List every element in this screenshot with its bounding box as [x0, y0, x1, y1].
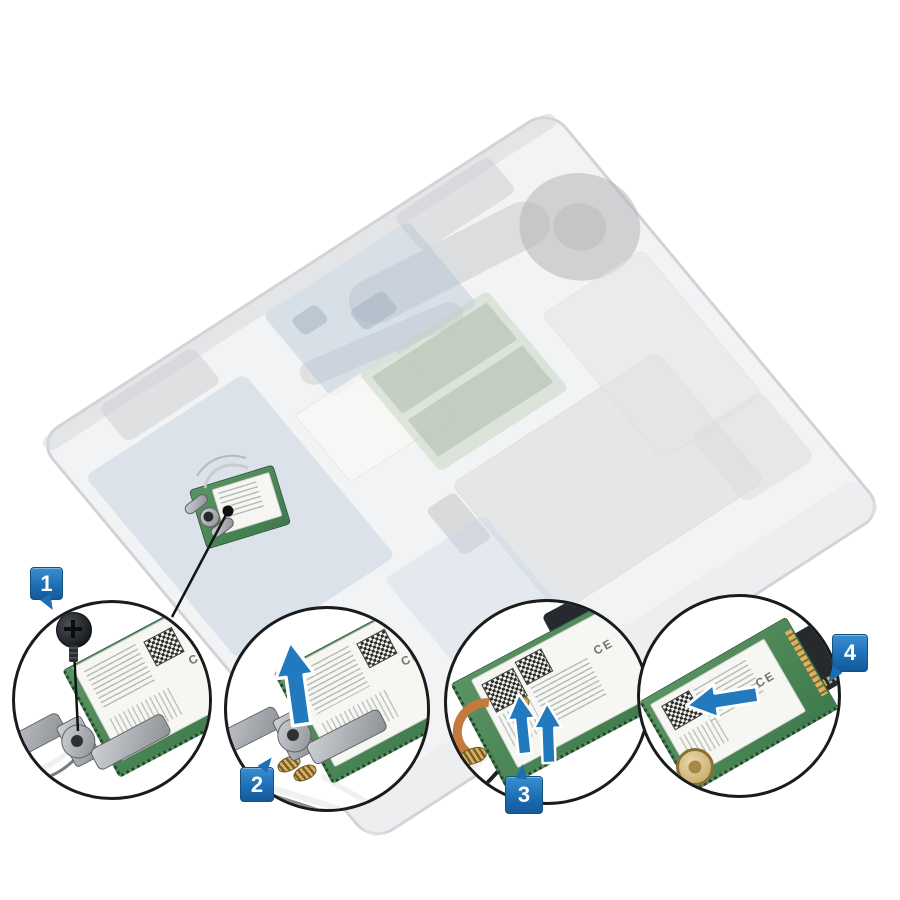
screw-shaft [69, 645, 78, 662]
step4-label: 4 [832, 634, 868, 672]
screw-axis-layer [15, 603, 209, 797]
bracket-wing-left [224, 705, 284, 764]
step2-label: 2 [240, 767, 274, 802]
step4-number: 4 [844, 640, 856, 666]
callout-step3-circle: CE [444, 599, 650, 805]
screw-slot-h [64, 627, 82, 631]
callout-step4-circle: CE [637, 594, 841, 798]
white-cable-loop [447, 796, 481, 802]
bracket-screw [56, 612, 90, 664]
standoff-center [689, 761, 702, 774]
ce-mark: CE [398, 647, 423, 669]
ce-mark: CE [591, 636, 616, 658]
callout-step1-circle: CE [12, 600, 212, 800]
step3-number: 3 [518, 782, 530, 808]
step2-number: 2 [251, 772, 263, 798]
figure-canvas: CE [0, 0, 900, 900]
step1-label: 1 [30, 567, 63, 600]
step3-label: 3 [505, 776, 543, 814]
label-texture [218, 481, 265, 521]
step1-number: 1 [40, 571, 52, 597]
disconnect-arrow-icon-2 [532, 695, 565, 770]
label-qr [356, 629, 397, 669]
step3-pointer [515, 763, 529, 779]
